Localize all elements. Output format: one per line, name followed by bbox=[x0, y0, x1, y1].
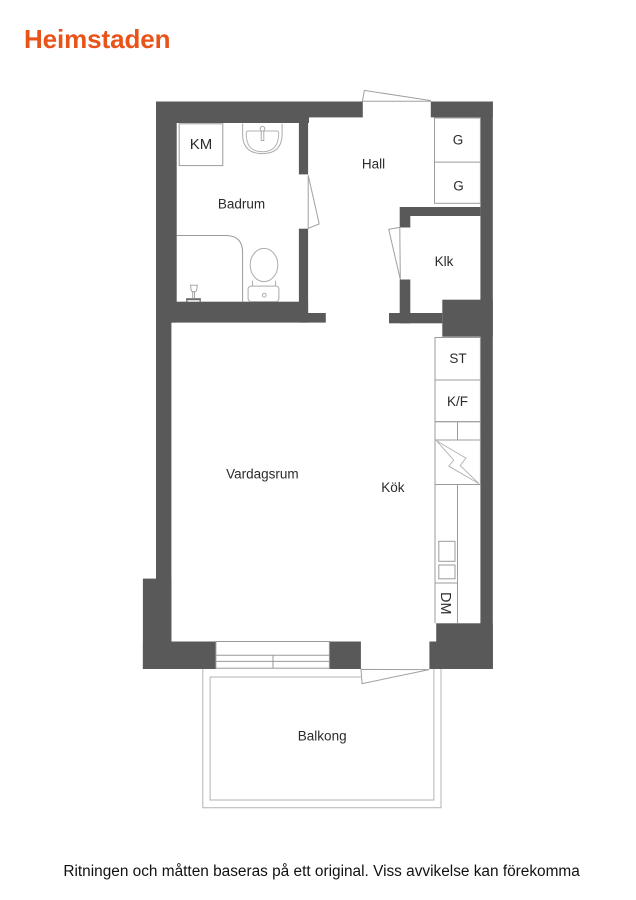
svg-text:Balkong: Balkong bbox=[298, 729, 347, 744]
svg-text:K/F: K/F bbox=[447, 394, 468, 409]
svg-text:Klk: Klk bbox=[435, 254, 454, 269]
svg-text:KM: KM bbox=[190, 136, 213, 153]
svg-text:DM: DM bbox=[437, 592, 453, 615]
svg-text:Hall: Hall bbox=[362, 157, 385, 172]
svg-text:G: G bbox=[453, 132, 464, 147]
svg-text:Badrum: Badrum bbox=[218, 196, 265, 211]
svg-text:Vardagsrum: Vardagsrum bbox=[226, 467, 299, 482]
svg-text:G: G bbox=[453, 178, 464, 193]
svg-text:Kök: Kök bbox=[381, 480, 405, 495]
svg-text:ST: ST bbox=[449, 351, 466, 366]
